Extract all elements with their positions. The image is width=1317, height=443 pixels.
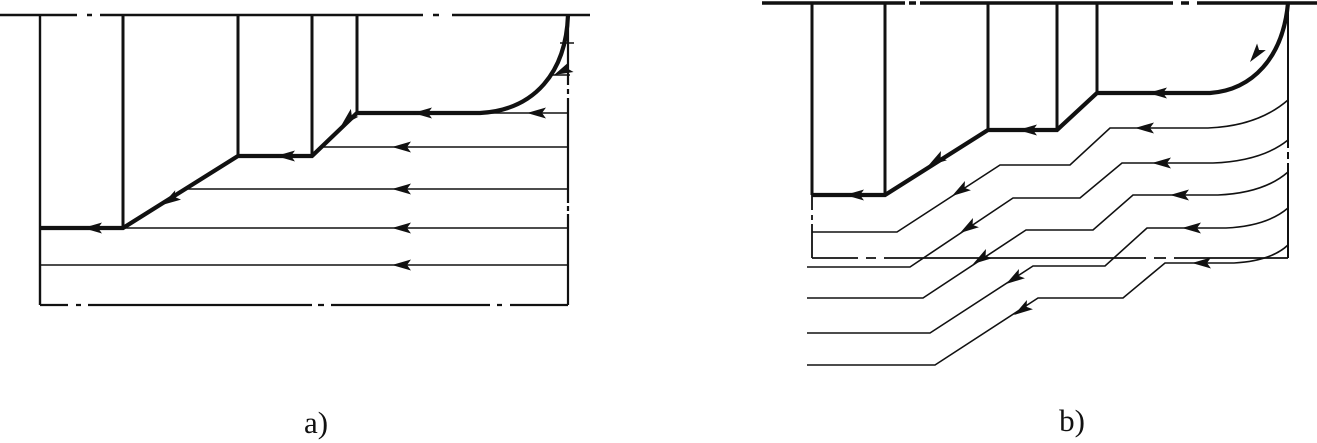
subfigure-label-a: a) [294,406,338,440]
tool-pass-1 [812,100,1288,232]
tool-pass-3 [807,172,1288,298]
straight-longitudinal-passes-scheme [0,15,590,305]
subfigure-label-b: b) [1050,404,1094,438]
part-profile [40,15,568,228]
step-projection-lines [885,3,1097,195]
tool-pass-2 [807,140,1288,267]
toolpath-diagrams-canvas [0,0,1317,443]
feed-direction-arrow [1246,44,1266,66]
feed-direction-arrow [957,218,979,238]
feed-direction-arrow [1003,269,1025,289]
contour-copying-passes-scheme [762,3,1317,365]
machining-passes-figure: a) b) [0,0,1317,443]
tool-pass-4 [807,208,1288,333]
part-profile [812,3,1288,195]
step-projection-lines [123,15,357,228]
tool-pass-5 [807,245,1288,365]
feed-direction-arrow [949,181,971,201]
